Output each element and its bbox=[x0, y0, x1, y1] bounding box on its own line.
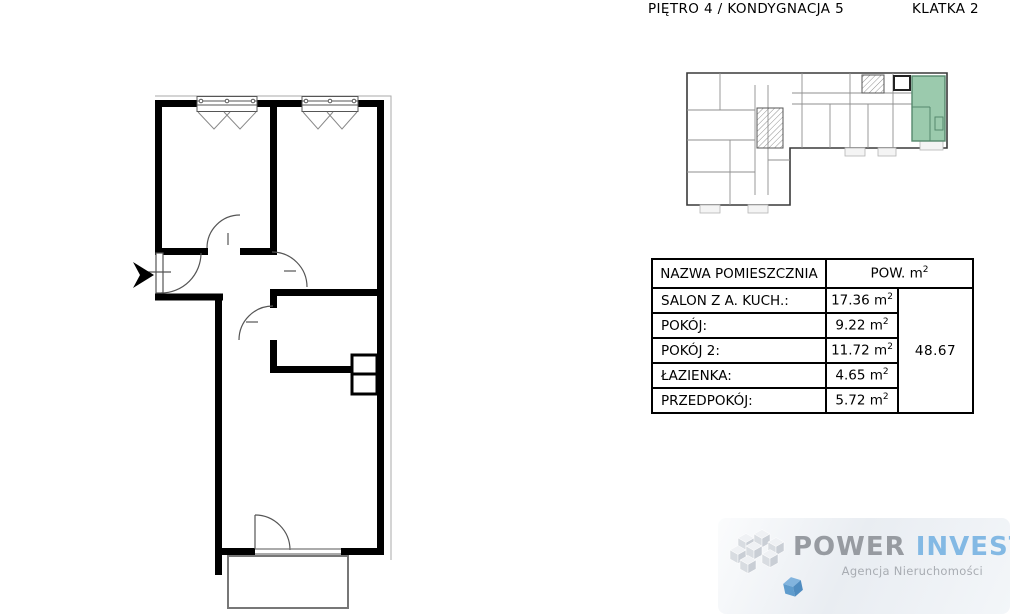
bathroom-door-icon bbox=[239, 306, 273, 340]
table-row: SALON Z A. KUCH.: 17.36 m2 48.67 bbox=[652, 288, 973, 313]
window-icon bbox=[197, 97, 257, 130]
room-area: 11.72 m2 bbox=[826, 338, 898, 363]
area-column-header: POW. m2 bbox=[826, 259, 973, 288]
brand-part-2: INVEST bbox=[916, 532, 1010, 562]
room-label: SALON Z A. KUCH.: bbox=[652, 288, 826, 313]
flyer-page: PIĘTRO 4 / KONDYGNACJA 5 KLATKA 2 bbox=[0, 0, 1010, 614]
duct-shaft bbox=[352, 355, 377, 394]
brand-name: POWER INVEST bbox=[793, 532, 985, 562]
room-area-table: NAZWA POMIESZCZNIA POW. m2 SALON Z A. KU… bbox=[651, 258, 974, 414]
entrance-door-icon bbox=[147, 253, 201, 293]
entrance-arrow-icon bbox=[133, 262, 154, 288]
apartment-floor-plan bbox=[133, 96, 391, 608]
room-label: PRZEDPOKÓJ: bbox=[652, 388, 826, 413]
brand-part-1: POWER bbox=[793, 532, 906, 562]
building-overview-plan bbox=[687, 73, 947, 213]
room-label: POKÓJ 2: bbox=[652, 338, 826, 363]
name-column-header: NAZWA POMIESZCZNIA bbox=[652, 259, 826, 288]
brand-subtitle: Agencja Nieruchomości bbox=[793, 564, 983, 578]
room-door-icon bbox=[207, 215, 240, 248]
balcony-outline bbox=[228, 556, 348, 608]
room-area: 5.72 m2 bbox=[826, 388, 898, 413]
table-header-row: NAZWA POMIESZCZNIA POW. m2 bbox=[652, 259, 973, 288]
room-area: 4.65 m2 bbox=[826, 363, 898, 388]
balcony-door-icon bbox=[255, 515, 341, 554]
room2-door-icon bbox=[272, 252, 307, 287]
door-symbols bbox=[147, 215, 341, 554]
window-icon bbox=[302, 97, 358, 130]
room-area: 9.22 m2 bbox=[826, 313, 898, 338]
highlighted-unit bbox=[912, 76, 945, 141]
room-label: ŁAZIENKA: bbox=[652, 363, 826, 388]
room-label: POKÓJ: bbox=[652, 313, 826, 338]
room-area: 17.36 m2 bbox=[826, 288, 898, 313]
total-area-cell: 48.67 bbox=[898, 288, 973, 413]
walls bbox=[155, 100, 384, 575]
